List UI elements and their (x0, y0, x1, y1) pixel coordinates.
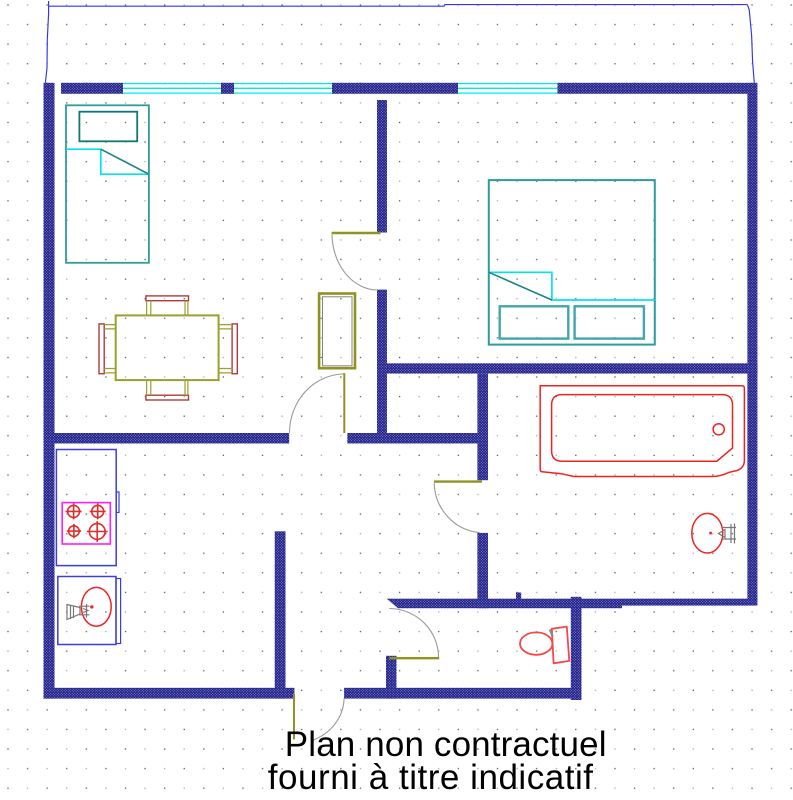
svg-text:fourni à titre indicatif: fourni à titre indicatif (268, 758, 593, 797)
